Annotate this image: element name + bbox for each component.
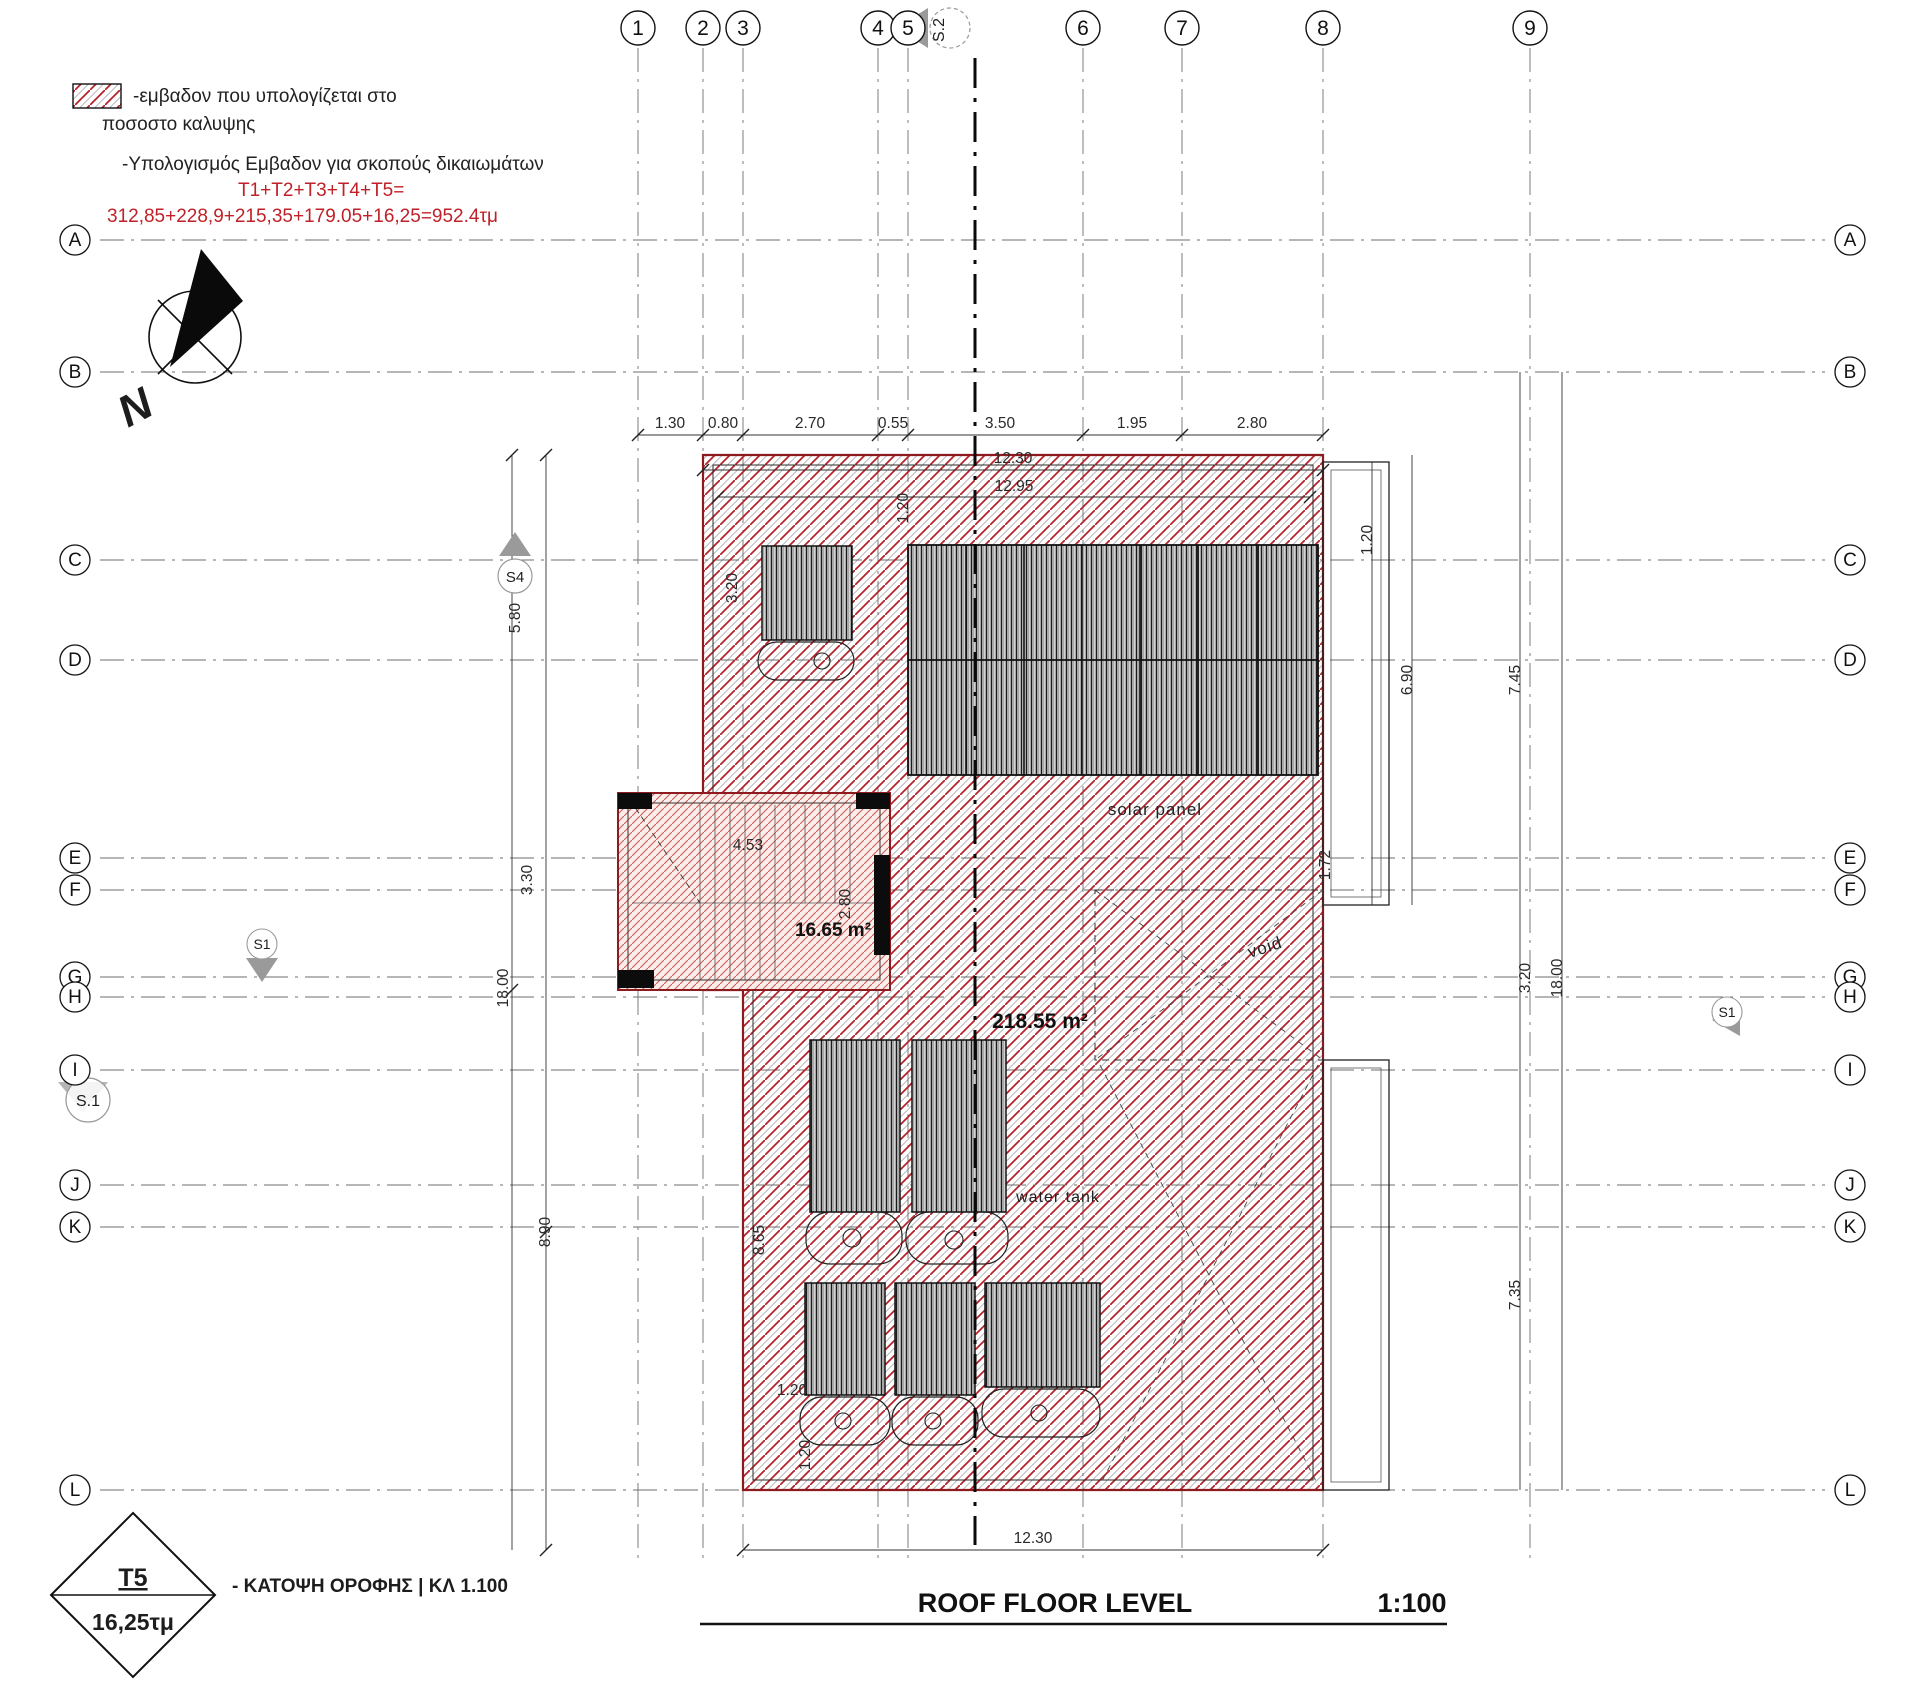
grid-column-bubble: 2 <box>686 11 720 45</box>
grid-row-label: L <box>70 1480 81 1501</box>
grid-column-label: 8 <box>1317 17 1329 40</box>
grid-row-label: B <box>69 362 82 383</box>
grid-column-bubble: 8 <box>1306 11 1340 45</box>
t5-stamp: T5 16,25τμ - ΚΑΤΟΨΗ ΟΡΟΦΗΣ | ΚΛ 1.100 <box>51 1513 508 1677</box>
legend-calc-result: 312,85+228,9+215,35+179.05+16,25=952.4τμ <box>107 206 498 227</box>
dim-left-1800: 18.00 <box>495 968 512 1007</box>
section-s1-right-label: S1 <box>1718 1004 1735 1020</box>
grid-row-label: F <box>69 880 81 901</box>
sheet-scale: 1:100 <box>1377 1588 1446 1618</box>
legend-line1: -εμβαδον που υπολογίζεται στο <box>133 86 397 107</box>
grid-column-bubble: 4 <box>861 11 895 45</box>
solar-panel-small <box>758 546 854 680</box>
grid-row-label: K <box>69 1217 82 1238</box>
grid-row-bubble: C <box>60 545 90 575</box>
grid-row-label: L <box>1845 1480 1856 1501</box>
grid-column-label: 7 <box>1176 17 1188 40</box>
stairwell: 4.53 2.80 16.65 m² <box>618 793 890 990</box>
grid-row-bubble: I <box>60 1055 90 1085</box>
dim-120-bottom-h: 1.20 <box>777 1382 808 1399</box>
grid-row-bubble: H <box>60 982 90 1012</box>
grid-column-bubble: 9 <box>1513 11 1547 45</box>
section-marker-s4: S4 <box>498 532 532 593</box>
stair-area-label: 16.65 m² <box>795 920 871 941</box>
grid-column-label: 9 <box>1524 17 1536 40</box>
dim-right-735: 7.35 <box>1507 1280 1524 1310</box>
stamp-caption: - ΚΑΤΟΨΗ ΟΡΟΦΗΣ | ΚΛ 1.100 <box>232 1576 508 1597</box>
section-s1-left-label: S1 <box>253 936 270 952</box>
grid-row-bubble: C <box>1835 545 1865 575</box>
grid-column-bubble: 6 <box>1066 11 1100 45</box>
dim-4-5: 0.55 <box>878 415 908 432</box>
roof-plan-sheet: { "legend": { "hatch_note_line1": "-εμβα… <box>0 0 1920 1682</box>
grid-row-bubble: A <box>60 225 90 255</box>
grid-row-bubble: E <box>60 843 90 873</box>
grid-column-bubble: 3 <box>726 11 760 45</box>
grid-column-label: 5 <box>902 17 914 40</box>
right-balcony-lower <box>1323 1060 1389 1490</box>
grid-row-bubble: H <box>1835 982 1865 1012</box>
dim-top-total: 12.30 <box>994 450 1033 467</box>
grid-row-bubble: I <box>1835 1055 1865 1085</box>
stair-depth-dim: 2.80 <box>837 889 854 920</box>
grid-row-label: J <box>70 1175 80 1196</box>
dim-120-top: 1.20 <box>895 493 912 524</box>
grid-row-bubble: L <box>60 1475 90 1505</box>
grid-row-label: A <box>1844 230 1857 251</box>
grid-row-label: F <box>1844 880 1856 901</box>
dim-7-8: 2.80 <box>1237 415 1268 432</box>
grid-row-label: C <box>1843 550 1857 571</box>
solar-array-main <box>908 545 1318 775</box>
legend-calc-formula: T1+T2+T3+T4+T5= <box>238 180 404 201</box>
grid-row-label: E <box>1844 848 1857 869</box>
right-balcony-upper <box>1323 462 1389 905</box>
dim-3-4: 2.70 <box>795 415 826 432</box>
grid-column-label: 4 <box>872 17 884 40</box>
grid-column-label: 2 <box>697 17 709 40</box>
legend-calc-note: -Υπολογισμός Εμβαδον για σκοπούς δικαιωμ… <box>122 154 544 175</box>
stamp-code: T5 <box>118 1564 147 1592</box>
dim-left-330: 3.30 <box>519 865 536 896</box>
grid-column-label: 1 <box>632 17 644 40</box>
water-tank-label: water tank <box>1015 1189 1100 1206</box>
grid-row-label: D <box>68 650 82 671</box>
grid-column-label: 6 <box>1077 17 1089 40</box>
section-s1-circle-label: S.1 <box>76 1093 100 1110</box>
grid-row-bubble: B <box>1835 357 1865 387</box>
dim-right-172: 1.72 <box>1317 850 1334 880</box>
dim-right-745: 7.45 <box>1507 665 1524 695</box>
grid-row-bubble: K <box>60 1212 90 1242</box>
grid-row-bubble: B <box>60 357 90 387</box>
grid-row-label: C <box>68 550 82 571</box>
legend: -εμβαδον που υπολογίζεται στο ποσοστο κα… <box>73 84 544 227</box>
dim-320-upper: 3.20 <box>724 573 741 604</box>
grid-row-bubble: A <box>1835 225 1865 255</box>
section-marker-s1-circle: S.1 <box>58 1078 110 1122</box>
dim-120-bottom-v: 1.20 <box>797 1440 814 1471</box>
section-marker-s1-left: S1 <box>246 929 278 982</box>
title-block: ROOF FLOOR LEVEL 1:100 <box>700 1588 1447 1624</box>
dim-5-6: 3.50 <box>985 415 1016 432</box>
grid-row-bubble: F <box>60 875 90 905</box>
grid-row-label: B <box>1844 362 1857 383</box>
dim-left-890: 8.90 <box>537 1217 554 1248</box>
grid-row-bubble: L <box>1835 1475 1865 1505</box>
dim-bottom-total: 12.30 <box>1014 1530 1053 1547</box>
dim-1-2: 1.30 <box>655 415 686 432</box>
grid-row-label: K <box>1844 1217 1857 1238</box>
grid-row-label: I <box>72 1060 77 1081</box>
grid-row-bubble: K <box>1835 1212 1865 1242</box>
solar-panel-label: solar panel <box>1108 800 1202 819</box>
grid-row-label: H <box>68 987 82 1008</box>
dim-2-3: 0.80 <box>708 415 739 432</box>
grid-row-bubble: F <box>1835 875 1865 905</box>
dim-865: 8.65 <box>751 1225 768 1255</box>
legend-line2: ποσοστο καλυψης <box>102 114 255 135</box>
dim-right-1800: 18.00 <box>1549 958 1566 997</box>
north-arrow: N <box>110 249 243 437</box>
grid-row-bubble: J <box>60 1170 90 1200</box>
dim-right-690: 6.90 <box>1399 665 1416 696</box>
grid-column-label: 3 <box>737 17 749 40</box>
north-label: N <box>110 378 162 437</box>
grid-column-bubble: 7 <box>1165 11 1199 45</box>
sheet-title: ROOF FLOOR LEVEL <box>918 1588 1193 1618</box>
dim-left-580: 5.80 <box>507 603 524 634</box>
dim-right-320: 3.20 <box>1517 963 1534 994</box>
roof-plan-drawing: void <box>0 0 1920 1682</box>
section-s2-label: S.2 <box>931 18 948 42</box>
stair-width-dim: 4.53 <box>733 837 763 854</box>
grid-row-bubble: D <box>60 645 90 675</box>
grid-row-bubble: J <box>1835 1170 1865 1200</box>
grid-row-label: H <box>1843 987 1857 1008</box>
grid-row-label: I <box>1847 1060 1852 1081</box>
grid-row-label: J <box>1845 1175 1855 1196</box>
section-marker-s1-right: S1 <box>1712 997 1742 1036</box>
grid-column-bubble: 1 <box>621 11 655 45</box>
roof-area-label: 218.55 m² <box>992 1010 1088 1033</box>
grid-row-bubble: D <box>1835 645 1865 675</box>
dim-inner-top: 12.95 <box>995 478 1034 495</box>
grid-row-label: A <box>69 230 82 251</box>
legend-hatch-swatch <box>73 84 121 108</box>
grid-row-bubble: E <box>1835 843 1865 873</box>
stamp-area: 16,25τμ <box>92 1609 174 1635</box>
grid-column-bubble: 5 <box>891 11 925 45</box>
section-s4-label: S4 <box>506 569 524 586</box>
grid-row-label: E <box>69 848 82 869</box>
grid-row-label: D <box>1843 650 1857 671</box>
dim-6-7: 1.95 <box>1117 415 1147 432</box>
dim-right-120: 1.20 <box>1359 525 1376 556</box>
